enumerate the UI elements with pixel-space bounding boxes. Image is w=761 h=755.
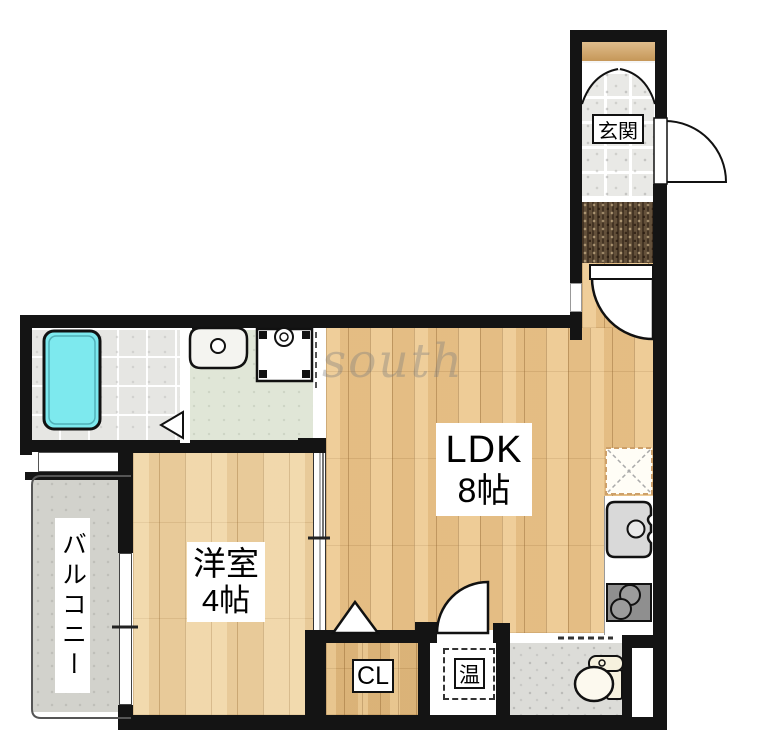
wall-outer-right bbox=[653, 184, 667, 730]
floor-plan: 玄関 LDK 8帖 洋室 4帖 バルコニー CL 温 south bbox=[0, 0, 761, 755]
wall-closet-right bbox=[418, 643, 430, 715]
wall-entrance-right-upper bbox=[655, 30, 667, 118]
wall-divider-top bbox=[298, 438, 326, 453]
window-western-west bbox=[119, 553, 132, 705]
washroom-floor bbox=[190, 330, 313, 443]
balcony-label-text: バルコニー bbox=[55, 531, 91, 681]
watermark: south bbox=[322, 334, 464, 389]
wall-western-left-upper bbox=[118, 440, 133, 553]
wall-south-main bbox=[118, 715, 667, 730]
entrance-corridor-floor bbox=[582, 263, 655, 328]
entrance-door bbox=[654, 118, 726, 184]
kitchen-counter bbox=[604, 496, 653, 635]
entrance-label: 玄関 bbox=[592, 114, 644, 144]
ldk-label: LDK 8帖 bbox=[436, 423, 532, 516]
water-heater-label: 温 bbox=[454, 658, 485, 689]
wall-toilet-left bbox=[496, 643, 510, 717]
bathroom-floor bbox=[32, 330, 180, 443]
wall-closet-left bbox=[305, 630, 326, 730]
sliding-door-track bbox=[313, 453, 326, 630]
wall-western-top bbox=[118, 440, 326, 453]
bath-washroom-partition bbox=[180, 330, 190, 443]
window-bathroom-south bbox=[38, 452, 122, 472]
window-entrance-west bbox=[570, 283, 582, 312]
wall-outer-left bbox=[20, 315, 32, 455]
pipe-space bbox=[632, 648, 653, 717]
door-threshold-ldk bbox=[437, 630, 493, 643]
wall-door-stub-right bbox=[493, 623, 510, 643]
water-heater-label-text: 温 bbox=[459, 659, 480, 689]
balcony-label: バルコニー bbox=[55, 518, 90, 693]
closet-label-text: CL bbox=[357, 662, 389, 691]
ldk-label-text: LDK bbox=[446, 429, 523, 471]
toilet-floor bbox=[510, 643, 622, 717]
watermark-text: south bbox=[322, 334, 464, 389]
wall-toilet-east bbox=[622, 648, 632, 717]
wall-balcony-top2 bbox=[25, 472, 130, 480]
wall-door-stub-left bbox=[415, 622, 437, 643]
wall-balcony-top bbox=[25, 440, 130, 452]
entrance-label-text: 玄関 bbox=[598, 115, 638, 144]
doormat bbox=[582, 202, 653, 263]
closet-label: CL bbox=[352, 659, 394, 693]
shoe-cabinet bbox=[582, 42, 655, 63]
western-room-label-text: 洋室 bbox=[193, 545, 259, 583]
wall-entrance-left bbox=[570, 30, 582, 283]
western-room-label: 洋室 4帖 bbox=[187, 542, 265, 622]
western-room-size-text: 4帖 bbox=[202, 583, 250, 619]
ldk-size-text: 8帖 bbox=[458, 471, 511, 511]
wall-north-main bbox=[20, 315, 582, 328]
wall-entrance-top bbox=[570, 30, 667, 42]
